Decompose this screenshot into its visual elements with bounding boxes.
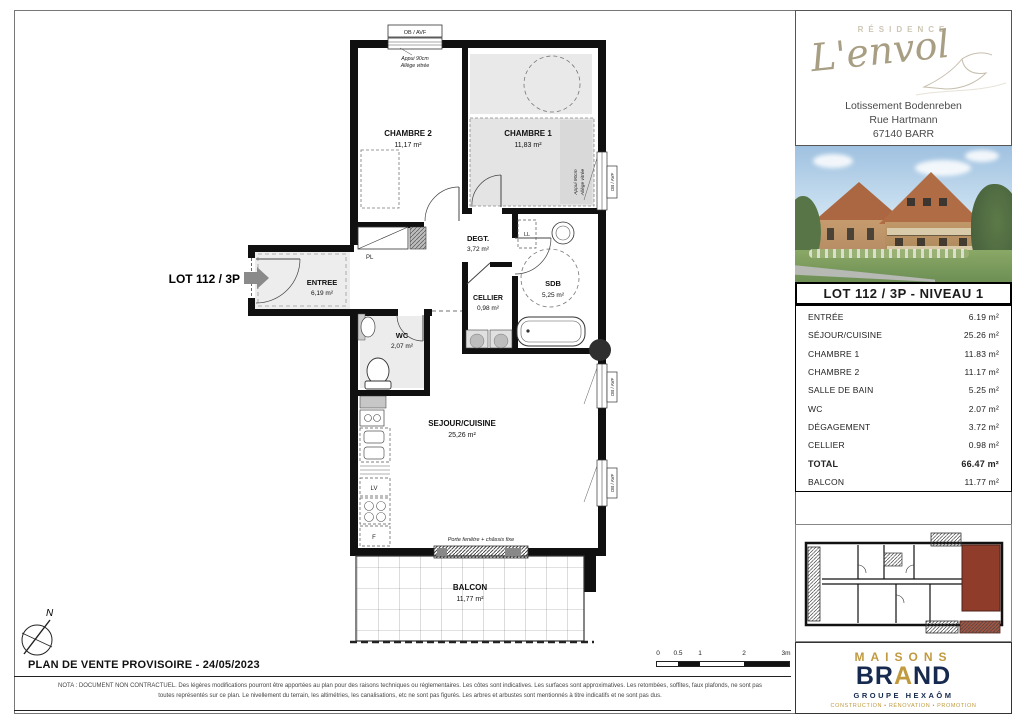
brand-word-part: ND [913, 662, 951, 690]
appui-right: Appui 90cm [573, 169, 579, 195]
room-area: 5.25 m² [969, 385, 999, 395]
sdb-label: SDB [545, 279, 561, 288]
room-area: 0.98 m² [969, 440, 999, 450]
balcon-label: BALCON [453, 583, 487, 592]
kitchen [360, 396, 390, 546]
flower-bed [809, 249, 969, 258]
room-name: SALLE DE BAIN [808, 385, 873, 395]
chambre1-label: CHAMBRE 1 [504, 129, 552, 138]
scale-bar: 0 0.5 1 2 3m [656, 650, 796, 674]
ob-avf-right-2: OB / AVF [610, 378, 615, 397]
scale-tick: 0.5 [673, 650, 682, 657]
brand-word-part: BR [856, 662, 894, 690]
room-area: 25.26 m² [964, 330, 999, 340]
cellier-door-leaf [467, 263, 490, 284]
allege-right: Allège vitrée [580, 168, 586, 196]
residence-logo-box: RÉSIDENCE L'envol Lotissement Bodenreben… [795, 10, 1012, 146]
room-name: CHAMBRE 2 [808, 367, 859, 377]
pl-label: PL [366, 255, 374, 261]
wc-basin [361, 317, 375, 337]
scale-tick: 0 [656, 650, 660, 657]
sdb-area: 5,25 m² [542, 292, 565, 299]
key-plan-balcony-bottom [926, 621, 958, 633]
toilet [367, 358, 389, 384]
room-area: 11.83 m² [964, 349, 999, 359]
ob-avf-right-3: OB / AVF [610, 474, 615, 493]
f-label: F [372, 535, 376, 541]
north-label: N [46, 608, 54, 619]
sejour-area: 25,26 m² [448, 432, 476, 439]
room-area: 11.77 m² [964, 477, 999, 487]
key-plan-highlighted-unit [962, 545, 1000, 611]
wc-label: WC [396, 331, 409, 340]
key-plan-balcony-left [808, 547, 820, 621]
chambre1-area: 11,83 m² [514, 142, 542, 149]
plan-de-vente-sheet: CHAMBRE 2 11,17 m² CHAMBRE 1 11,83 m² DE… [0, 0, 1024, 724]
area-table-row: SÉJOUR/CUISINE 25.26 m² [808, 330, 999, 340]
floor-plan: CHAMBRE 2 11,17 m² CHAMBRE 1 11,83 m² DE… [0, 0, 793, 724]
room-name: DÉGAGEMENT [808, 422, 870, 432]
allege-top: Allège vitrée [400, 63, 430, 69]
degt-label: DEGT. [467, 234, 489, 243]
key-plan-box [795, 524, 1012, 642]
room-area: 3.72 m² [969, 422, 999, 432]
room-area: 6.19 m² [969, 312, 999, 322]
address-line-2: Rue Hartmann [796, 113, 1011, 127]
brand-word-a: A [894, 662, 913, 690]
lot-header: LOT 112 / 3P - NIVEAU 1 [795, 282, 1012, 305]
area-table-row: DÉGAGEMENT 3.72 m² [808, 422, 999, 432]
footer-rule-top [14, 676, 791, 677]
appui-top: Appui 90cm [400, 56, 429, 62]
area-table-row: WC 2.07 m² [808, 404, 999, 414]
hob [360, 498, 390, 524]
address-line-1: Lotissement Bodenreben [796, 99, 1011, 113]
room-name: SÉJOUR/CUISINE [808, 330, 882, 340]
scale-tick: 2 [742, 650, 746, 657]
area-table-row: CHAMBRE 1 11.83 m² [808, 349, 999, 359]
lot-label: LOT 112 / 3P [169, 272, 240, 286]
room-area: 66.47 m² [961, 459, 999, 469]
room-name: WC [808, 404, 823, 414]
window-top [388, 38, 442, 49]
room-name: TOTAL [808, 459, 838, 469]
area-table-row: ENTRÉE 6.19 m² [808, 312, 999, 322]
chambre2-area: 11,17 m² [394, 142, 422, 149]
building-front-roof [879, 172, 983, 224]
key-plan-balcony-top [931, 533, 961, 546]
chambre2-label: CHAMBRE 2 [384, 129, 432, 138]
nota-line-1: NOTA : DOCUMENT NON CONTRACTUEL. Des lég… [40, 681, 780, 691]
sink [360, 428, 390, 462]
ob-avf-top: OB / AVF [404, 30, 427, 36]
lv-label: LV [371, 486, 378, 492]
wc-area: 2,07 m² [391, 343, 414, 350]
balcon-area: 11,77 m² [456, 596, 484, 603]
cellier-area: 0,98 m² [477, 305, 500, 312]
cellier-label: CELLIER [473, 295, 503, 302]
brand-word: BRAND [796, 664, 1011, 690]
area-table: ENTRÉE 6.19 m² SÉJOUR/CUISINE 25.26 m² C… [795, 305, 1012, 492]
ob-avf-right-1: OB / AVF [610, 173, 615, 192]
room-area: 11.17 m² [964, 367, 999, 377]
entree-area: 6,19 m² [311, 290, 334, 297]
area-table-row: TOTAL 66.47 m² [808, 459, 999, 469]
footer-rule-bottom [14, 710, 791, 711]
scale-tick: 3m [781, 650, 790, 657]
sdb-basin [552, 222, 574, 244]
room-name: ENTRÉE [808, 312, 844, 322]
scale-bar-track [656, 661, 790, 667]
address-line-3: 67140 BARR [796, 127, 1011, 141]
address-block: Lotissement Bodenreben Rue Hartmann 6714… [796, 99, 1011, 141]
north-compass-icon: N [22, 608, 54, 655]
chambre1-furniture [470, 54, 592, 114]
area-table-row: CELLIER 0.98 m² [808, 440, 999, 450]
area-table-row: CHAMBRE 2 11.17 m² [808, 367, 999, 377]
room-name: BALCON [808, 477, 844, 487]
room-name: CHAMBRE 1 [808, 349, 859, 359]
brand-tagline: CONSTRUCTION • RÉNOVATION • PROMOTION [796, 703, 1011, 709]
ll-label: LL [524, 232, 530, 238]
brand-logo-box: MAISONS BRAND GROUPE HEXAÔM CONSTRUCTION… [795, 642, 1012, 714]
footer-title: PLAN DE VENTE PROVISOIRE - 24/05/2023 [28, 659, 260, 671]
key-plan [796, 525, 1013, 643]
room-name: CELLIER [808, 440, 845, 450]
degt-area: 3,72 m² [467, 246, 490, 253]
structural-column [589, 339, 611, 361]
porte-fenetre-label: Porte fenêtre + châssis fixe [448, 537, 515, 543]
scale-tick: 1 [698, 650, 702, 657]
dove-icon [916, 49, 1006, 99]
entree-label: ENTREE [307, 278, 337, 287]
nota-text: NOTA : DOCUMENT NON CONTRACTUEL. Des lég… [40, 681, 780, 701]
key-plan-stairs [884, 553, 902, 566]
chambre2-wardrobe [361, 150, 399, 208]
area-table-row: SALLE DE BAIN 5.25 m² [808, 385, 999, 395]
building-photo [795, 146, 1012, 282]
sejour-label: SEJOUR/CUISINE [428, 419, 496, 428]
balcony [350, 546, 594, 642]
nota-line-2: toutes représentés sur ce plan. Le nivel… [40, 691, 780, 701]
brand-groupe: GROUPE HEXAÔM [796, 691, 1011, 700]
room-area: 2.07 m² [969, 404, 999, 414]
area-table-row: BALCON 11.77 m² [808, 477, 999, 487]
